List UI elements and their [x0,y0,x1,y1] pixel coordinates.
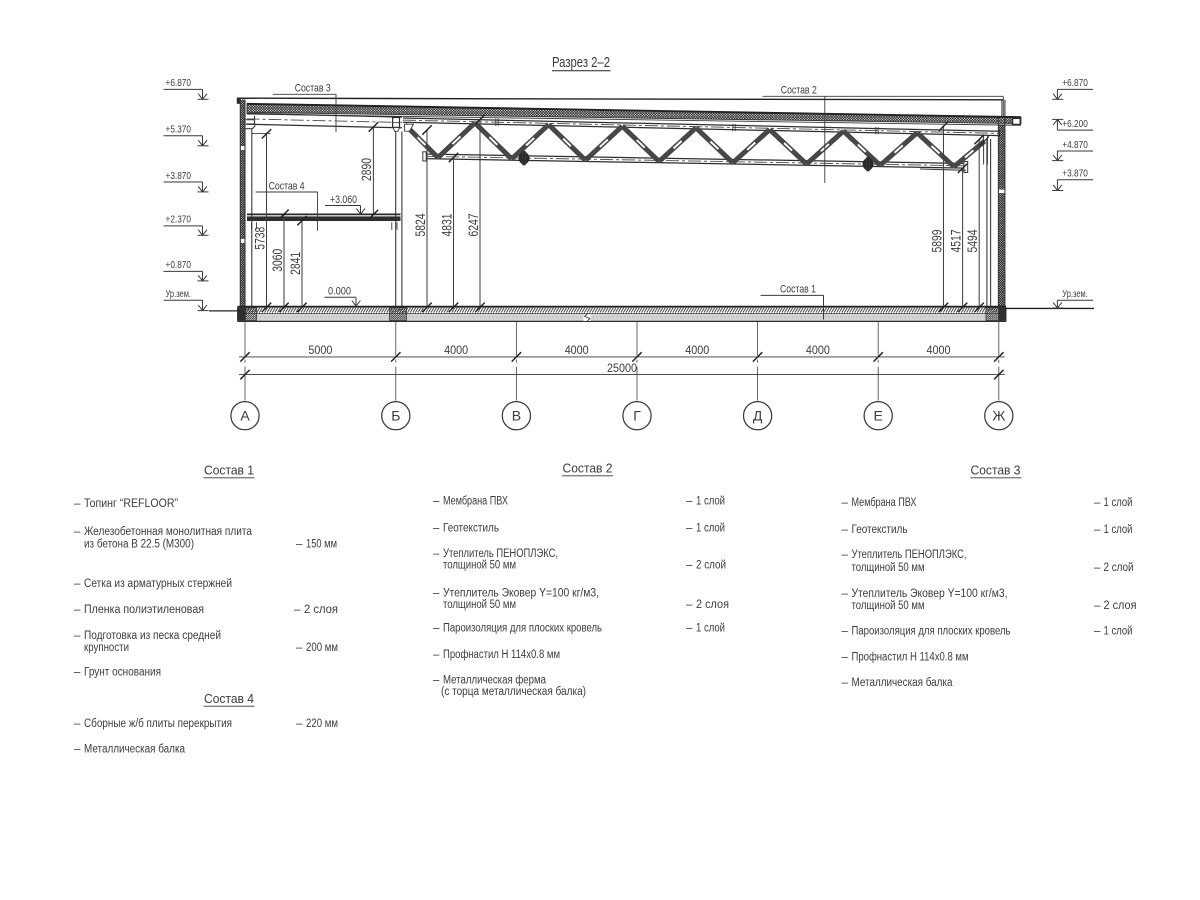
svg-text:4831: 4831 [439,214,454,237]
svg-text:–: – [842,588,849,600]
svg-text:–: – [686,522,693,534]
svg-text:Пароизоляция для плоских крове: Пароизоляция для плоских кровель [852,625,1011,637]
svg-text:Грунт основания: Грунт основания [84,667,161,679]
svg-text:+4.870: +4.870 [1062,139,1088,151]
svg-text:Ур.зем.: Ур.зем. [1062,288,1088,300]
svg-text:–: – [74,578,81,590]
svg-text:Ур.зем.: Ур.зем. [166,288,192,300]
svg-text:2 слоя: 2 слоя [304,604,338,616]
svg-text:–: – [294,604,301,616]
svg-text:Топинг “REFLOOR”: Топинг “REFLOOR” [84,498,178,510]
svg-text:В: В [512,408,521,424]
svg-text:А: А [240,408,250,424]
svg-text:толщиной 50 мм: толщиной 50 мм [852,600,925,612]
svg-text:1 слой: 1 слой [1104,625,1133,637]
svg-text:5000: 5000 [308,343,332,357]
svg-text:Б: Б [391,408,400,424]
svg-text:–: – [842,497,849,509]
svg-text:0.000: 0.000 [328,286,351,298]
svg-text:Металлическая балка: Металлическая балка [84,744,186,756]
svg-text:Профнастил Н 114х0.8 мм: Профнастил Н 114х0.8 мм [852,652,969,664]
svg-text:6247: 6247 [466,214,481,237]
svg-text:1 слой: 1 слой [1104,524,1133,536]
svg-text:4517: 4517 [949,230,964,253]
svg-text:(с торца металлическая балка): (с торца металлическая балка) [441,686,586,698]
svg-text:4000: 4000 [565,343,589,357]
svg-text:–: – [686,559,693,571]
svg-text:+6.200: +6.200 [1062,118,1088,130]
svg-text:Утеплитель Эковер Y=100 кг/м3,: Утеплитель Эковер Y=100 кг/м3, [852,588,1008,600]
svg-text:4000: 4000 [444,343,468,357]
svg-text:Состав 3: Состав 3 [295,83,331,95]
svg-text:3060: 3060 [270,249,285,272]
svg-text:Ж: Ж [992,408,1005,424]
svg-text:Состав 2: Состав 2 [563,461,613,476]
svg-text:из бетона В 22.5 (М300): из бетона В 22.5 (М300) [84,539,194,551]
svg-text:–: – [1094,625,1101,637]
svg-text:толщиной 50 мм: толщиной 50 мм [443,599,516,611]
svg-text:Утеплитель Эковер Y=100 кг/м3,: Утеплитель Эковер Y=100 кг/м3, [443,588,599,600]
svg-text:2 слоя: 2 слоя [696,599,729,611]
svg-text:Состав 4: Состав 4 [269,180,305,192]
svg-text:–: – [433,588,440,600]
svg-text:150 мм: 150 мм [306,539,337,551]
svg-text:–: – [842,652,849,664]
svg-text:–: – [433,622,440,634]
svg-text:Мембрана ПВХ: Мембрана ПВХ [443,496,508,508]
svg-text:+2.370: +2.370 [166,214,192,226]
svg-text:–: – [1094,497,1101,509]
svg-text:2890: 2890 [359,158,374,181]
svg-text:Состав 4: Состав 4 [204,691,254,706]
svg-text:4000: 4000 [806,343,830,357]
svg-text:Мембрана ПВХ: Мембрана ПВХ [852,497,917,509]
svg-text:Г: Г [633,408,641,424]
svg-text:–: – [433,548,440,560]
svg-text:–: – [296,539,303,551]
svg-text:2841: 2841 [288,252,303,275]
svg-text:200 мм: 200 мм [306,642,338,654]
svg-text:Состав 2: Состав 2 [781,84,817,96]
svg-text:5824: 5824 [413,213,428,236]
svg-text:5738: 5738 [252,227,267,250]
svg-text:+0.870: +0.870 [166,259,192,271]
svg-text:толщиной 50 мм: толщиной 50 мм [852,562,925,574]
svg-text:–: – [433,496,440,508]
svg-text:Металлическая ферма: Металлическая ферма [443,675,546,687]
svg-text:220 мм: 220 мм [306,718,338,730]
svg-text:Утеплитель ПЕНОПЛЭКС,: Утеплитель ПЕНОПЛЭКС, [443,548,558,560]
svg-text:–: – [1094,524,1101,536]
svg-text:–: – [74,744,81,756]
svg-text:25000: 25000 [607,361,637,375]
svg-text:+3.060: +3.060 [330,194,357,206]
svg-text:1 слой: 1 слой [696,496,725,508]
svg-text:–: – [1094,600,1101,612]
svg-text:–: – [74,498,81,510]
svg-text:+6.870: +6.870 [1062,77,1088,89]
svg-text:–: – [74,604,81,616]
svg-text:–: – [686,496,693,508]
svg-text:Пленка полиэтиленовая: Пленка полиэтиленовая [84,604,204,616]
svg-text:+3.870: +3.870 [1062,168,1088,180]
svg-text:Состав 1: Состав 1 [204,463,254,478]
svg-text:Сборные ж/б плиты перекрытия: Сборные ж/б плиты перекрытия [84,718,232,730]
svg-text:–: – [842,524,849,536]
svg-text:толщиной 50 мм: толщиной 50 мм [443,559,516,571]
svg-text:Пароизоляция для плоских крове: Пароизоляция для плоских кровель [443,622,602,634]
svg-text:4000: 4000 [927,343,951,357]
svg-text:Состав 1: Состав 1 [780,284,816,296]
svg-text:–: – [842,549,849,561]
svg-text:Геотекстиль: Геотекстиль [443,522,499,534]
svg-text:2 слоя: 2 слоя [1104,600,1137,612]
svg-text:–: – [296,718,303,730]
svg-text:крупности: крупности [84,642,129,654]
svg-text:+5.370: +5.370 [166,124,192,136]
svg-text:–: – [74,526,81,538]
svg-text:2 слой: 2 слой [696,559,726,571]
svg-text:+6.870: +6.870 [166,77,192,89]
svg-text:Утеплитель ПЕНОПЛЭКС,: Утеплитель ПЕНОПЛЭКС, [852,549,967,561]
svg-text:Д: Д [753,408,763,424]
svg-text:Разрез 2–2: Разрез 2–2 [552,54,610,71]
svg-text:Профнастил Н 114х0.8 мм: Профнастил Н 114х0.8 мм [443,649,560,661]
svg-text:Сетка из арматурных стержней: Сетка из арматурных стержней [84,578,232,590]
svg-text:Металлическая балка: Металлическая балка [852,677,954,689]
svg-text:Железобетонная монолитная пли: Железобетонная монолитная плита [84,526,253,538]
svg-text:–: – [433,522,440,534]
svg-text:Геотекстиль: Геотекстиль [852,524,908,536]
svg-text:4000: 4000 [685,343,709,357]
svg-text:–: – [686,622,693,634]
svg-text:–: – [74,667,81,679]
svg-text:–: – [74,718,81,730]
svg-text:–: – [74,630,81,642]
svg-text:–: – [842,677,849,689]
svg-text:5494: 5494 [965,229,980,252]
svg-text:1 слой: 1 слой [696,622,725,634]
svg-text:–: – [433,649,440,661]
svg-text:–: – [842,625,849,637]
svg-text:1 слой: 1 слой [696,522,725,534]
svg-text:1 слой: 1 слой [1104,497,1133,509]
svg-text:–: – [296,642,303,654]
svg-text:–: – [686,599,693,611]
svg-text:Е: Е [874,408,883,424]
svg-text:Подготовка из песка средней: Подготовка из песка средней [84,630,221,642]
svg-text:–: – [433,675,440,687]
svg-text:+3.870: +3.870 [166,170,192,182]
svg-text:5899: 5899 [929,230,944,253]
svg-text:–: – [1094,562,1101,574]
svg-text:Состав 3: Состав 3 [971,463,1021,478]
svg-text:2 слой: 2 слой [1104,562,1134,574]
